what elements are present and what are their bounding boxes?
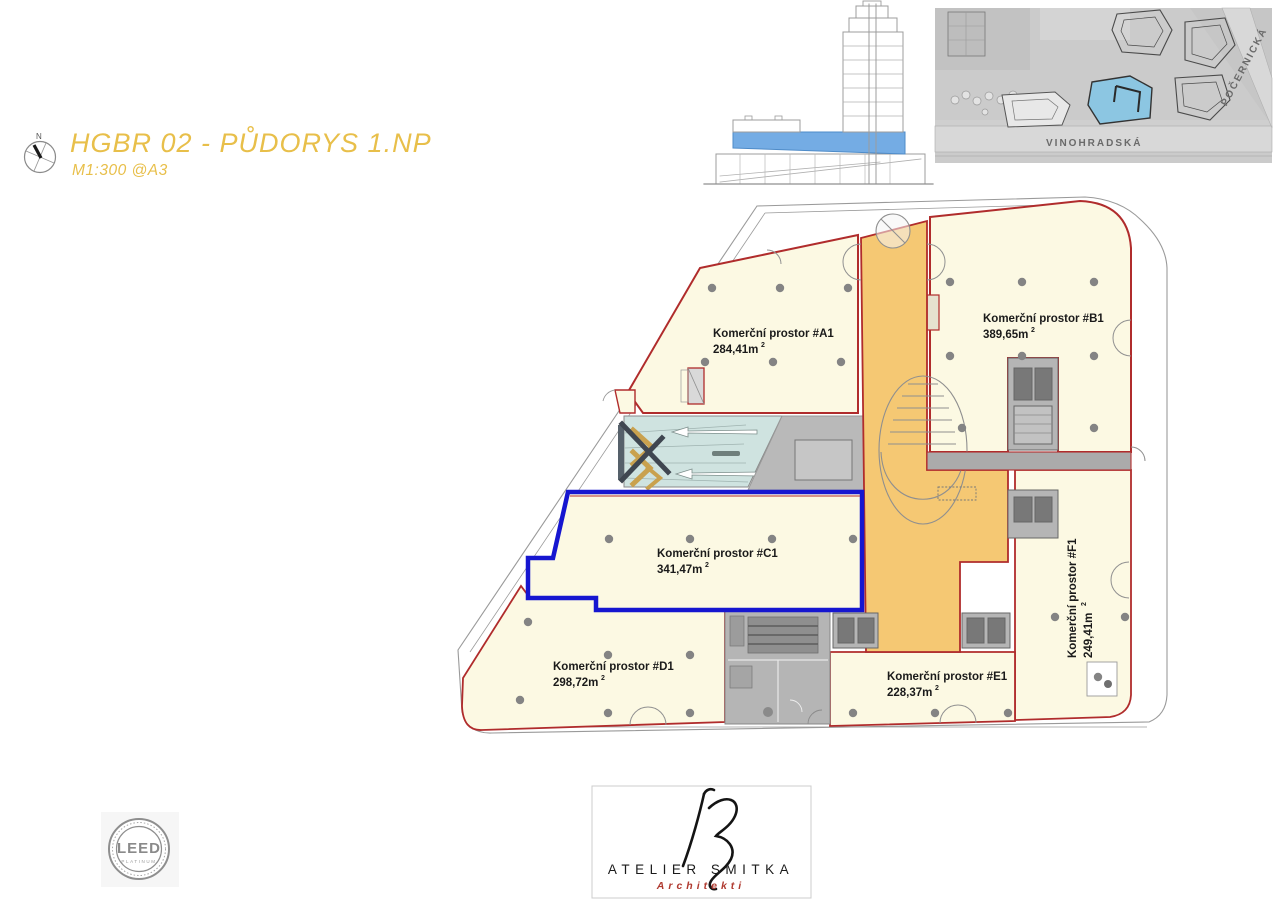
studio-name: ATELIER SMITKA (608, 862, 794, 877)
unit-a1-region (628, 235, 858, 413)
svg-text:2: 2 (1081, 602, 1088, 606)
studio-subtitle: Architekti (656, 880, 745, 892)
unit-e1-label: Komerční prostor #E1 (887, 671, 1008, 683)
site-plan-inset: VINOHRADSKÁ POČERNICKÁ (935, 8, 1272, 163)
unit-b1-label: Komerční prostor #B1 (983, 313, 1104, 325)
unit-d1-area: 298,72m (553, 677, 598, 689)
page-scale: M1:300 @A3 (72, 162, 168, 179)
inset-street-vinohradska: VINOHRADSKÁ (1046, 136, 1142, 149)
drawing-sheet: N HGBR 02 - PŮDORYS 1.NP M1:300 @A3 (0, 0, 1280, 905)
page-title: HGBR 02 - PŮDORYS 1.NP (70, 124, 432, 158)
service-block (725, 611, 830, 724)
leed-badge: LEED PLATINUM (101, 812, 179, 887)
unit-a1-label: Komerční prostor #A1 (713, 328, 834, 340)
compass-icon: N (25, 132, 56, 173)
svg-text:2: 2 (761, 342, 765, 349)
unit-f1-area: 249,41m (1083, 613, 1095, 658)
svg-text:2: 2 (601, 675, 605, 682)
svg-text:2: 2 (1031, 327, 1035, 334)
building-elevation (704, 1, 933, 184)
elevation-first-floor-highlight (733, 132, 905, 154)
unit-e1-area: 228,37m (887, 687, 932, 699)
unit-f1-label: Komerční prostor #F1 (1067, 538, 1079, 658)
corridor (927, 452, 1131, 470)
unit-d1-label: Komerční prostor #D1 (553, 661, 674, 673)
unit-c1-label: Komerční prostor #C1 (657, 548, 778, 560)
unit-b1-area: 389,65m (983, 329, 1028, 341)
inset-highlight-building (1088, 76, 1152, 124)
svg-text:2: 2 (935, 685, 939, 692)
leed-title: LEED (117, 840, 161, 857)
unit-a1-area: 284,41m (713, 344, 758, 356)
compass-north-label: N (36, 132, 42, 141)
svg-text:2: 2 (705, 562, 709, 569)
floor-plan: Komerční prostor #A1 284,41m 2 Komerční … (458, 197, 1167, 733)
studio-logo: ATELIER SMITKA Architekti (592, 786, 811, 898)
unit-c1-area: 341,47m (657, 564, 702, 576)
leed-level: PLATINUM (121, 859, 156, 864)
